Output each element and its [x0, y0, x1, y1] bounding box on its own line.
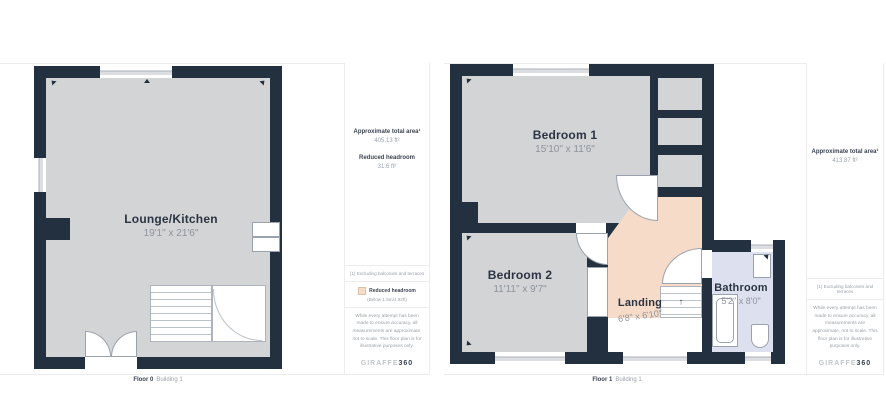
- logo-suffix: 360: [399, 360, 414, 367]
- floor-label: Floor 1: [592, 377, 612, 383]
- staircase: [150, 285, 212, 342]
- room-dims: 5'2" x 8'0": [714, 296, 768, 306]
- door-opening: [702, 250, 712, 278]
- tile0-bottom-rule: [0, 374, 430, 375]
- stat-label: Approximate total area¹: [353, 129, 420, 135]
- floorplan-canvas: { "floor0": { "rooms": [ {"name": "Loung…: [0, 0, 886, 400]
- window: [100, 66, 172, 78]
- floor0-info-panel: Approximate total area¹ 405.13 ft² Reduc…: [344, 63, 430, 374]
- closet: [658, 155, 702, 187]
- room-dims: 19'1" x 21'6": [124, 228, 217, 239]
- logo-brand: GIRAFFE: [361, 360, 399, 367]
- window: [495, 352, 565, 364]
- stat-value: 413.87 ft²: [811, 158, 878, 164]
- floor1-info-panel: Approximate total area¹ 413.87 ft² (1) E…: [806, 63, 884, 374]
- kitchen-unit: [252, 222, 280, 252]
- area-footnote: (1) Excluding balconies and terraces: [345, 265, 429, 281]
- stat-label: Approximate total area¹: [811, 149, 878, 155]
- reduced-headroom-swatch-icon: [358, 287, 366, 295]
- legend-sublabel: (Below 1.5m/4.92ft): [349, 297, 425, 302]
- reduced-headroom-stat: Reduced headroom 31.6 ft²: [359, 155, 415, 170]
- room-dims: 11'11" x 9'7": [488, 284, 552, 295]
- staircase: ↑: [660, 286, 702, 318]
- logo-brand: GIRAFFE: [819, 360, 857, 367]
- room-name: Bedroom 2: [488, 268, 552, 282]
- window: [745, 352, 771, 364]
- room-name: Bedroom 1: [533, 128, 597, 142]
- area-footnote: (1) Excluding balconies and terraces: [807, 278, 883, 299]
- stat-value: 31.6 ft²: [359, 164, 415, 170]
- legend-label: Reduced headroom: [369, 288, 416, 294]
- window: [34, 158, 46, 192]
- room-name: Landing: [618, 297, 662, 309]
- giraffe360-logo: GIRAFFE360: [345, 356, 429, 374]
- floor-label: Floor 0: [133, 377, 153, 383]
- door-opening: [85, 357, 137, 369]
- toilet: [751, 324, 769, 348]
- stair-treads: [151, 286, 211, 341]
- window: [623, 352, 687, 364]
- room-label-bedroom1: Bedroom 1 15'10" x 11'6": [533, 128, 597, 155]
- floor0-plan: Lounge/Kitchen 19'1" x 21'6": [34, 66, 282, 369]
- giraffe360-logo: GIRAFFE360: [807, 356, 883, 374]
- logo-suffix: 360: [857, 360, 872, 367]
- floor1-plan: ↑ Bedroom 1 15'10" x 11'6" Bedroom 2 11'…: [450, 64, 785, 364]
- cupboard: [587, 267, 608, 317]
- window: [751, 240, 773, 252]
- disclaimer-text: While every attempt has been made to ens…: [345, 307, 429, 356]
- room-dims: 15'10" x 11'6": [533, 144, 597, 155]
- room-label-landing: Landing 6'8" x 6'10": [618, 297, 662, 321]
- stat-label: Reduced headroom: [359, 155, 415, 161]
- reduced-headroom-legend: Reduced headroom (Below 1.5m/4.92ft): [345, 281, 429, 307]
- floor0-stats: Approximate total area¹ 405.13 ft² Reduc…: [345, 63, 429, 265]
- total-area-stat: Approximate total area¹ 405.13 ft²: [353, 129, 420, 144]
- floor0-footer: Floor 0Building 1: [98, 377, 218, 383]
- door-opening: [576, 223, 606, 233]
- disclaimer-text: While every attempt has been made to ens…: [807, 299, 883, 356]
- room-label-bedroom2: Bedroom 2 11'11" x 9'7": [488, 268, 552, 295]
- tile1-bottom-rule: [444, 374, 884, 375]
- closet: [658, 118, 702, 145]
- chimney-breast: [46, 218, 70, 240]
- room-label-lounge-kitchen: Lounge/Kitchen 19'1" x 21'6": [124, 212, 217, 239]
- building-label: Building 1: [156, 377, 182, 383]
- building-label: Building 1: [615, 377, 641, 383]
- room-name: Bathroom: [714, 282, 768, 294]
- floor1-footer: Floor 1Building 1: [557, 377, 677, 383]
- staircase-winder: [212, 285, 266, 342]
- closet: [658, 78, 702, 110]
- stat-value: 405.13 ft²: [353, 138, 420, 144]
- window: [513, 64, 589, 76]
- total-area-stat: Approximate total area¹ 413.87 ft²: [811, 149, 878, 164]
- stairs-up-arrow-icon: ↑: [661, 297, 701, 306]
- room-name: Lounge/Kitchen: [124, 212, 217, 226]
- chimney-breast: [462, 202, 478, 225]
- floor1-stats: Approximate total area¹ 413.87 ft²: [807, 63, 883, 278]
- stair-curve: [213, 289, 262, 341]
- room-label-bathroom: Bathroom 5'2" x 8'0": [714, 282, 768, 306]
- measurement-tick-icon: [144, 79, 150, 83]
